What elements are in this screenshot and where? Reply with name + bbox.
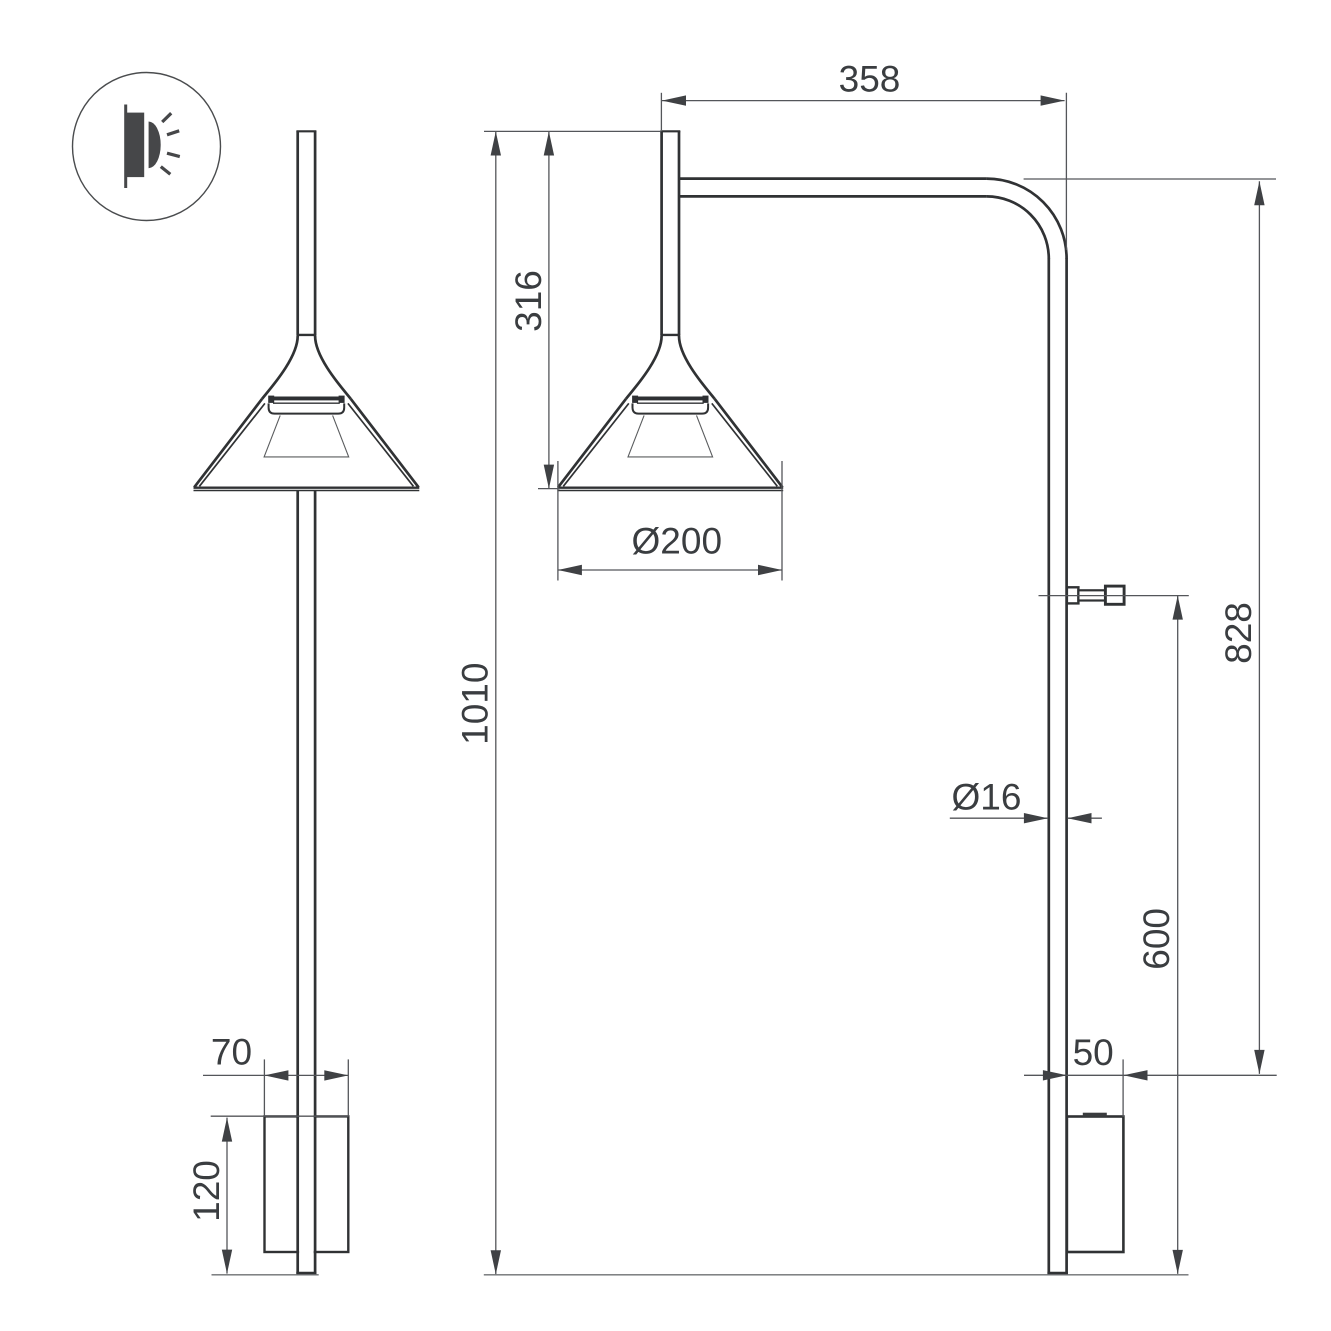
svg-text:70: 70 [211, 1032, 252, 1073]
svg-text:828: 828 [1218, 602, 1259, 664]
svg-text:1010: 1010 [454, 663, 495, 745]
svg-text:120: 120 [186, 1160, 227, 1222]
svg-text:316: 316 [508, 270, 549, 332]
svg-text:50: 50 [1073, 1032, 1114, 1073]
svg-text:Ø200: Ø200 [632, 521, 723, 562]
svg-text:358: 358 [839, 59, 901, 100]
svg-text:600: 600 [1136, 908, 1177, 970]
svg-text:Ø16: Ø16 [952, 777, 1022, 818]
